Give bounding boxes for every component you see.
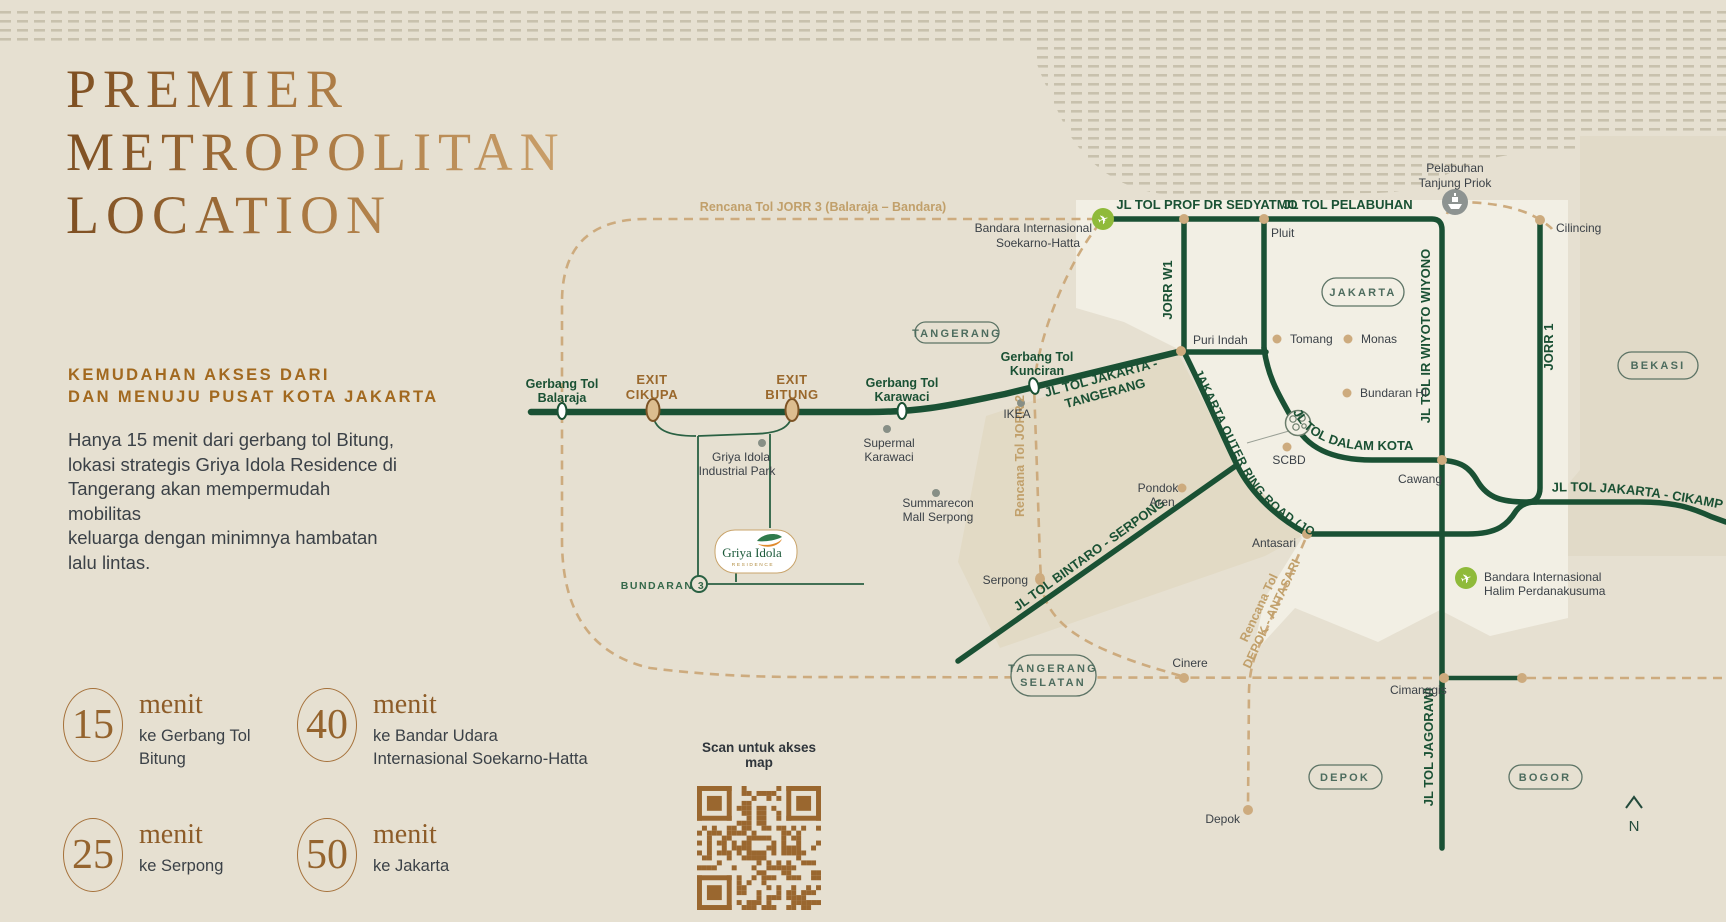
label-puri-indah: Puri Indah xyxy=(1193,333,1248,347)
stat-serpong-value: 25 xyxy=(63,818,123,892)
label-halim-2: Halim Perdanakusuma xyxy=(1484,584,1606,598)
label-bundaran3: BUNDARAN 3 xyxy=(621,580,705,592)
title-line-1: PREMIER xyxy=(66,58,566,121)
halim-airport-icon: ✈ xyxy=(1455,567,1477,589)
compass-north: N xyxy=(1626,797,1642,835)
label-bundaran-hi: Bundaran HI xyxy=(1360,386,1427,400)
label-pondok-aren-1: Pondok xyxy=(1138,481,1180,495)
intro-line-1: Hanya 15 menit dari gerbang tol Bitung, xyxy=(68,428,398,453)
label-jorr1: JORR 1 xyxy=(1541,324,1556,371)
stat-bitung-desc-2: Bitung xyxy=(139,748,251,771)
logo-name: Griya Idola xyxy=(722,545,782,560)
compass-label: N xyxy=(1629,818,1640,835)
stat-serpong-number: 25 xyxy=(72,831,114,879)
label-soetta-1: Bandara Internasional xyxy=(975,221,1092,235)
label-cinere: Cinere xyxy=(1172,656,1208,670)
stat-jakarta: 50 menit ke Jakarta xyxy=(297,818,449,892)
label-cikupa-1: EXIT xyxy=(636,372,667,387)
label-tol-pelabuhan: JL TOL PELABUHAN xyxy=(1283,197,1412,212)
stat-bitung-desc: ke Gerbang Tol Bitung xyxy=(139,725,251,771)
qr-section: Scan untuk akses map xyxy=(689,740,829,915)
label-tomang: Tomang xyxy=(1290,332,1333,346)
stat-serpong-unit: menit xyxy=(139,820,223,850)
stat-jakarta-number: 50 xyxy=(306,831,348,879)
gate-kunciran xyxy=(1028,377,1041,395)
section-heading-line1: KEMUDAHAN AKSES DARI xyxy=(68,364,439,386)
page-title: PREMIER METROPOLITAN LOCATION xyxy=(66,58,566,247)
stat-serpong-desc: ke Serpong xyxy=(139,855,223,878)
gate-balaraja xyxy=(558,403,567,419)
stat-bitung-desc-1: ke Gerbang Tol xyxy=(139,725,251,748)
label-jorr-w1: JORR W1 xyxy=(1160,260,1175,319)
intro-line-5: lalu lintas. xyxy=(68,551,398,576)
label-cilincing: Cilincing xyxy=(1556,221,1601,235)
section-heading: KEMUDAHAN AKSES DARI DAN MENUJU PUSAT KO… xyxy=(68,364,439,408)
section-heading-line2: DAN MENUJU PUSAT KOTA JAKARTA xyxy=(68,386,439,408)
label-cikupa-2: CIKUPA xyxy=(626,387,678,402)
stat-airport-desc-1: ke Bandar Udara xyxy=(373,725,588,748)
label-supermal-2: Karawaci xyxy=(864,450,913,464)
label-pondok-aren-2: Aren xyxy=(1149,495,1174,509)
stat-bitung-value: 15 xyxy=(63,688,123,762)
label-summarecon-1: Summarecon xyxy=(902,496,973,510)
label-karawaci-1: Gerbang Tol xyxy=(866,376,939,390)
logo-subtitle: RESIDENCE xyxy=(732,562,774,568)
stat-jakarta-value: 50 xyxy=(297,818,357,892)
badge-tsel-line2: SELATAN xyxy=(1020,677,1086,689)
stat-airport: 40 menit ke Bandar Udara Internasional S… xyxy=(297,688,588,771)
stat-jakarta-desc: ke Jakarta xyxy=(373,855,449,878)
label-cimanggis: Cimanggis xyxy=(1390,683,1447,697)
tanjung-priok-port-icon xyxy=(1442,189,1468,215)
exit-bitung-node xyxy=(786,399,799,421)
stat-serpong: 25 menit ke Serpong xyxy=(63,818,223,892)
qr-caption: Scan untuk akses map xyxy=(689,740,829,770)
label-scbd: SCBD xyxy=(1272,453,1306,467)
soekarno-hatta-airport-icon: ✈ xyxy=(1092,208,1114,230)
label-kunciran-2: Kunciran xyxy=(1010,364,1064,378)
badge-depok: DEPOK xyxy=(1309,765,1382,789)
title-line-3: LOCATION xyxy=(66,184,566,247)
label-giip-2: Industrial Park xyxy=(699,464,777,478)
label-jorr3: Rencana Tol JORR 3 (Balaraja – Bandara) xyxy=(700,200,946,214)
label-priok-1: Pelabuhan xyxy=(1426,161,1483,175)
stat-jakarta-desc-1: ke Jakarta xyxy=(373,855,449,878)
title-line-2: METROPOLITAN xyxy=(66,121,566,184)
stat-airport-number: 40 xyxy=(306,701,348,749)
stat-airport-unit: menit xyxy=(373,690,588,720)
label-balaraja-2: Balaraja xyxy=(538,391,588,405)
badge-tangerang-label: TANGERANG xyxy=(912,328,1002,340)
stat-bitung-number: 15 xyxy=(72,701,114,749)
label-pluit: Pluit xyxy=(1271,226,1295,240)
label-sedyatmo: JL TOL PROF DR SEDYATMO xyxy=(1116,197,1297,212)
stat-bitung-unit: menit xyxy=(139,690,251,720)
label-monas: Monas xyxy=(1361,332,1397,346)
stat-airport-desc: ke Bandar Udara Internasional Soekarno-H… xyxy=(373,725,588,771)
qr-code xyxy=(697,786,821,910)
label-summarecon-2: Mall Serpong xyxy=(903,510,974,524)
label-bitung-2: BITUNG xyxy=(765,387,818,402)
badge-bogor: BOGOR xyxy=(1509,765,1582,789)
stat-airport-value: 40 xyxy=(297,688,357,762)
label-ikea: IKEA xyxy=(1003,407,1030,421)
badge-jakarta-label: JAKARTA xyxy=(1329,287,1396,299)
label-priok-2: Tanjung Priok xyxy=(1419,176,1493,190)
label-jagorawi: JL TOL JAGORAWI xyxy=(1421,688,1436,806)
badge-tangerang: TANGERANG xyxy=(912,322,1002,343)
exit-cikupa-node xyxy=(647,399,660,421)
gate-karawaci xyxy=(898,403,907,419)
intro-line-2: lokasi strategis Griya Idola Residence d… xyxy=(68,453,398,478)
intro-paragraph: Hanya 15 menit dari gerbang tol Bitung, … xyxy=(68,428,398,575)
label-kunciran-1: Gerbang Tol xyxy=(1001,350,1074,364)
intro-line-4: keluarga dengan minimnya hambatan xyxy=(68,526,398,551)
badge-bekasi-label: BEKASI xyxy=(1631,360,1686,372)
location-poster: ✈ ✈ TANGERANG JA xyxy=(0,0,1726,922)
label-karawaci-2: Karawaci xyxy=(875,390,930,404)
stat-airport-desc-2: Internasional Soekarno-Hatta xyxy=(373,748,588,771)
badge-tsel-line1: TANGERANG xyxy=(1008,663,1098,675)
label-cawang: Cawang xyxy=(1398,472,1442,486)
label-bitung-1: EXIT xyxy=(776,372,807,387)
stat-jakarta-unit: menit xyxy=(373,820,449,850)
label-depok-city: Depok xyxy=(1205,812,1241,826)
stat-serpong-desc-1: ke Serpong xyxy=(139,855,223,878)
label-balaraja-1: Gerbang Tol xyxy=(526,377,599,391)
label-giip-1: Griya Idola xyxy=(712,450,770,464)
stat-bitung: 15 menit ke Gerbang Tol Bitung xyxy=(63,688,251,771)
badge-depok-label: DEPOK xyxy=(1320,772,1370,784)
label-halim-1: Bandara Internasional xyxy=(1484,570,1601,584)
griya-idola-logo-card: Griya Idola RESIDENCE xyxy=(715,530,797,573)
badge-bogor-label: BOGOR xyxy=(1519,772,1572,784)
label-soetta-2: Soekarno-Hatta xyxy=(996,236,1080,250)
badge-tangerang-selatan: TANGERANG SELATAN xyxy=(1008,655,1098,696)
label-antasari: Antasari xyxy=(1252,536,1296,550)
label-serpong: Serpong xyxy=(983,573,1028,587)
intro-line-3: Tangerang akan mempermudah mobilitas xyxy=(68,477,398,526)
label-supermal-1: Supermal xyxy=(863,436,914,450)
